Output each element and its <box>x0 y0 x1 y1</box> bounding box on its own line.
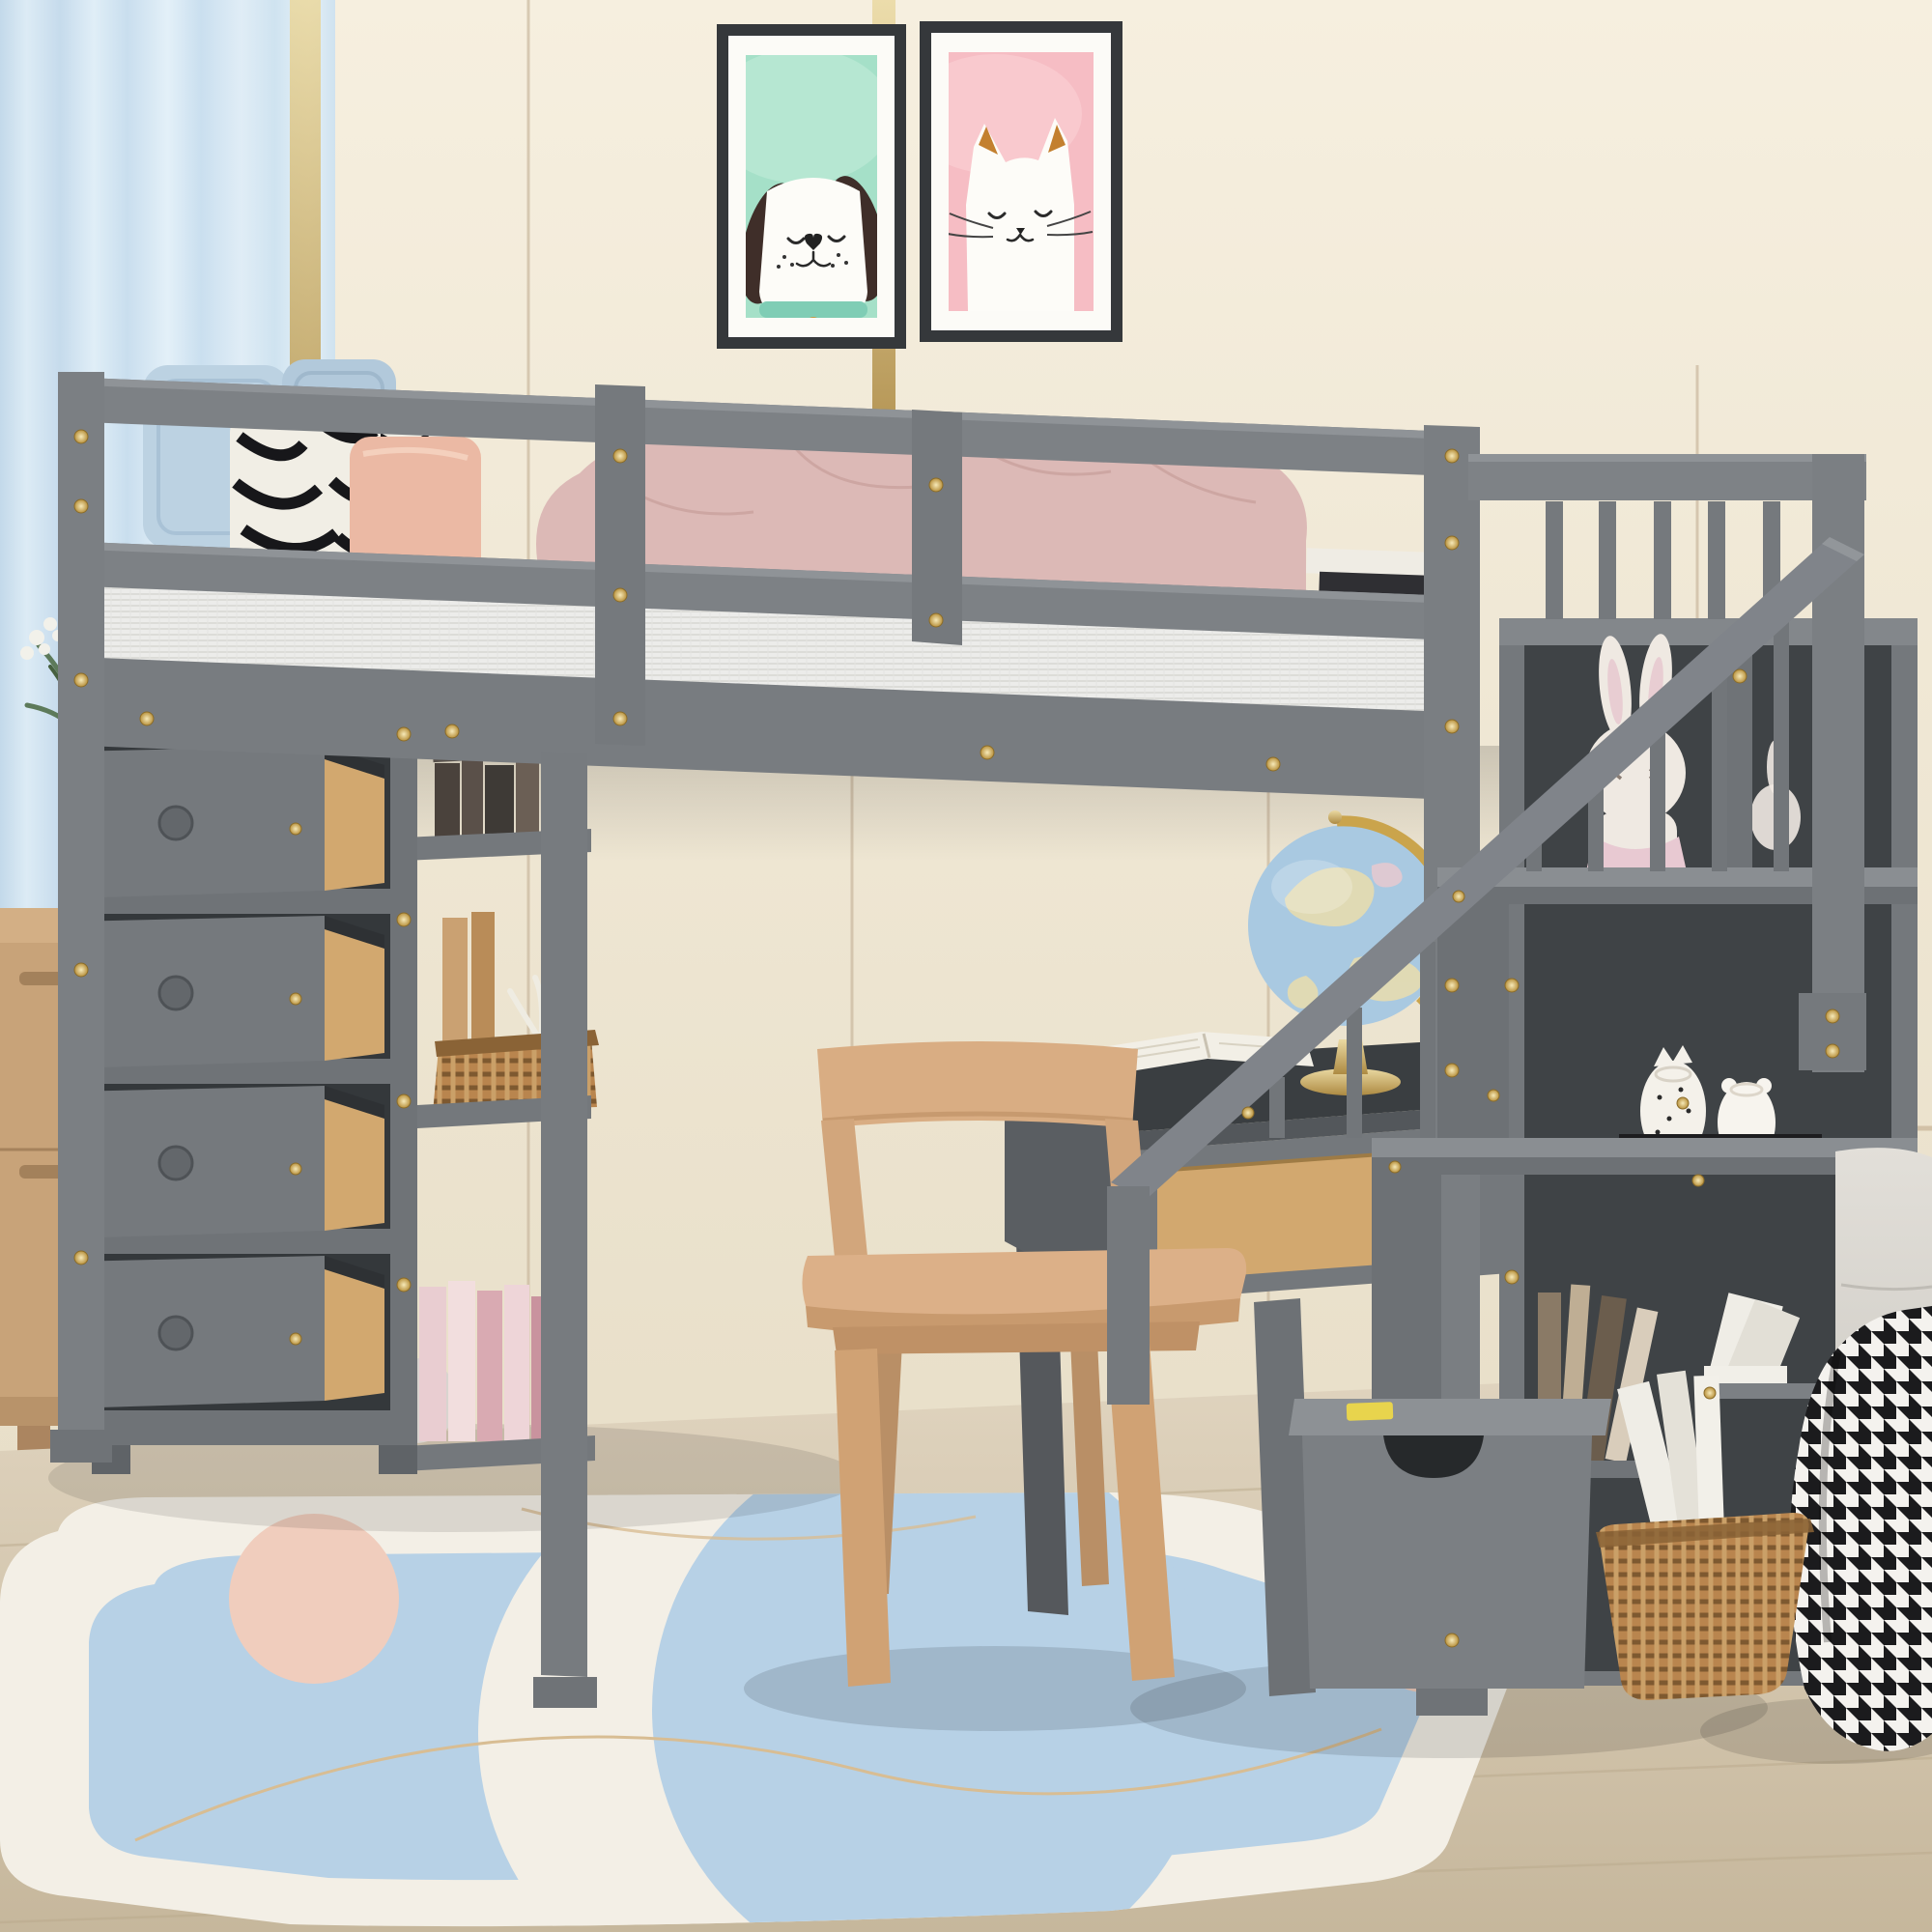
bed-post-center <box>541 752 587 1677</box>
bed-post-left <box>58 372 104 1430</box>
rail-support <box>595 384 645 746</box>
poster-dog <box>710 24 906 349</box>
poster-cat <box>908 21 1122 342</box>
room-photo <box>0 0 1932 1932</box>
drawer-cabinet <box>68 686 417 1474</box>
rug-pink-circle <box>229 1514 399 1684</box>
yellow-sticker <box>1347 1402 1394 1421</box>
